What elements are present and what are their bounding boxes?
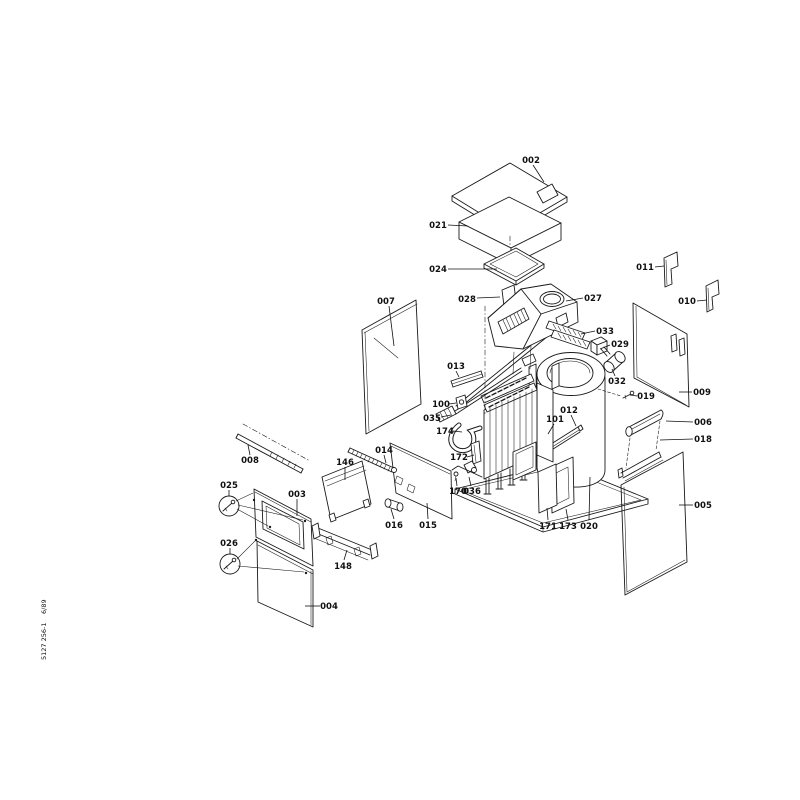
leader-line-148 xyxy=(344,550,347,560)
leader-line-173 xyxy=(566,509,568,520)
part-label-019: 019 xyxy=(637,392,655,402)
part-013-channel xyxy=(451,371,483,387)
part-label-101: 101 xyxy=(546,415,564,425)
part-label-013: 013 xyxy=(447,362,465,372)
part-label-174: 174 xyxy=(436,427,454,437)
part-label-010: 010 xyxy=(678,297,696,307)
part-label-173: 173 xyxy=(559,522,577,532)
part-label-005: 005 xyxy=(694,501,712,511)
part-label-024: 024 xyxy=(429,265,447,275)
part-148-channel xyxy=(312,523,378,560)
leader-line-100 xyxy=(449,403,456,404)
part-label-172: 172 xyxy=(450,453,468,463)
leader-line-028 xyxy=(477,297,500,298)
part-label-028: 028 xyxy=(458,295,476,305)
leader-line-010 xyxy=(697,300,707,301)
part-label-036: 036 xyxy=(463,487,481,497)
part-171-plate xyxy=(538,464,557,513)
part-label-171: 171 xyxy=(539,522,557,532)
part-label-002: 002 xyxy=(522,156,540,166)
leader-line-011 xyxy=(655,266,664,267)
part-label-012: 012 xyxy=(560,406,578,416)
part-label-035: 035 xyxy=(423,414,441,424)
part-label-011: 011 xyxy=(636,263,654,273)
part-label-146: 146 xyxy=(336,458,354,468)
part-label-029: 029 xyxy=(611,340,629,350)
part-146-cover-bracket xyxy=(322,461,371,522)
leader-line-036 xyxy=(469,477,471,486)
part-label-027: 027 xyxy=(584,294,602,304)
part-label-006: 006 xyxy=(694,418,712,428)
part-label-015: 015 xyxy=(419,521,437,531)
part-label-032: 032 xyxy=(608,377,626,387)
part-label-009: 009 xyxy=(693,388,711,398)
part-label-008: 008 xyxy=(241,456,259,466)
part-011-bracket xyxy=(664,252,678,287)
part-label-026: 026 xyxy=(220,539,238,549)
part-007-side-panel xyxy=(362,300,421,434)
part-label-007: 007 xyxy=(377,297,395,307)
part-label-021: 021 xyxy=(429,221,447,231)
leader-line-171 xyxy=(547,508,548,520)
leader-line-019 xyxy=(630,395,637,396)
leader-line-006 xyxy=(666,421,693,422)
part-016-spacer xyxy=(385,499,403,511)
part-label-014: 014 xyxy=(375,446,393,456)
part-label-016: 016 xyxy=(385,521,403,531)
leader-line-014 xyxy=(384,455,386,463)
leader-line-016 xyxy=(391,509,394,519)
part-label-003: 003 xyxy=(288,490,306,500)
drawing-number: 5127 256-1 xyxy=(40,623,48,661)
part-label-100: 100 xyxy=(432,400,450,410)
exploded-parts-diagram: 0020210240280270330290320110100090190060… xyxy=(0,0,800,800)
part-172-bracket xyxy=(471,441,481,464)
part-label-018: 018 xyxy=(694,435,712,445)
part-label-004: 004 xyxy=(320,602,338,612)
part-100-clip xyxy=(456,395,467,409)
leader-line-170 xyxy=(456,478,457,486)
diagram-page: 0020210240280270330290320110100090190060… xyxy=(0,0,800,800)
part-010-bracket xyxy=(706,280,719,312)
part-label-033: 033 xyxy=(596,327,614,337)
part-029-junction-box xyxy=(591,337,607,355)
drawing-date: 6/89 xyxy=(40,599,48,614)
leader-line-018 xyxy=(660,439,693,440)
part-label-148: 148 xyxy=(334,562,352,572)
part-label-025: 025 xyxy=(220,481,238,491)
leader-line-008 xyxy=(248,445,250,455)
part-label-020: 020 xyxy=(580,522,598,532)
